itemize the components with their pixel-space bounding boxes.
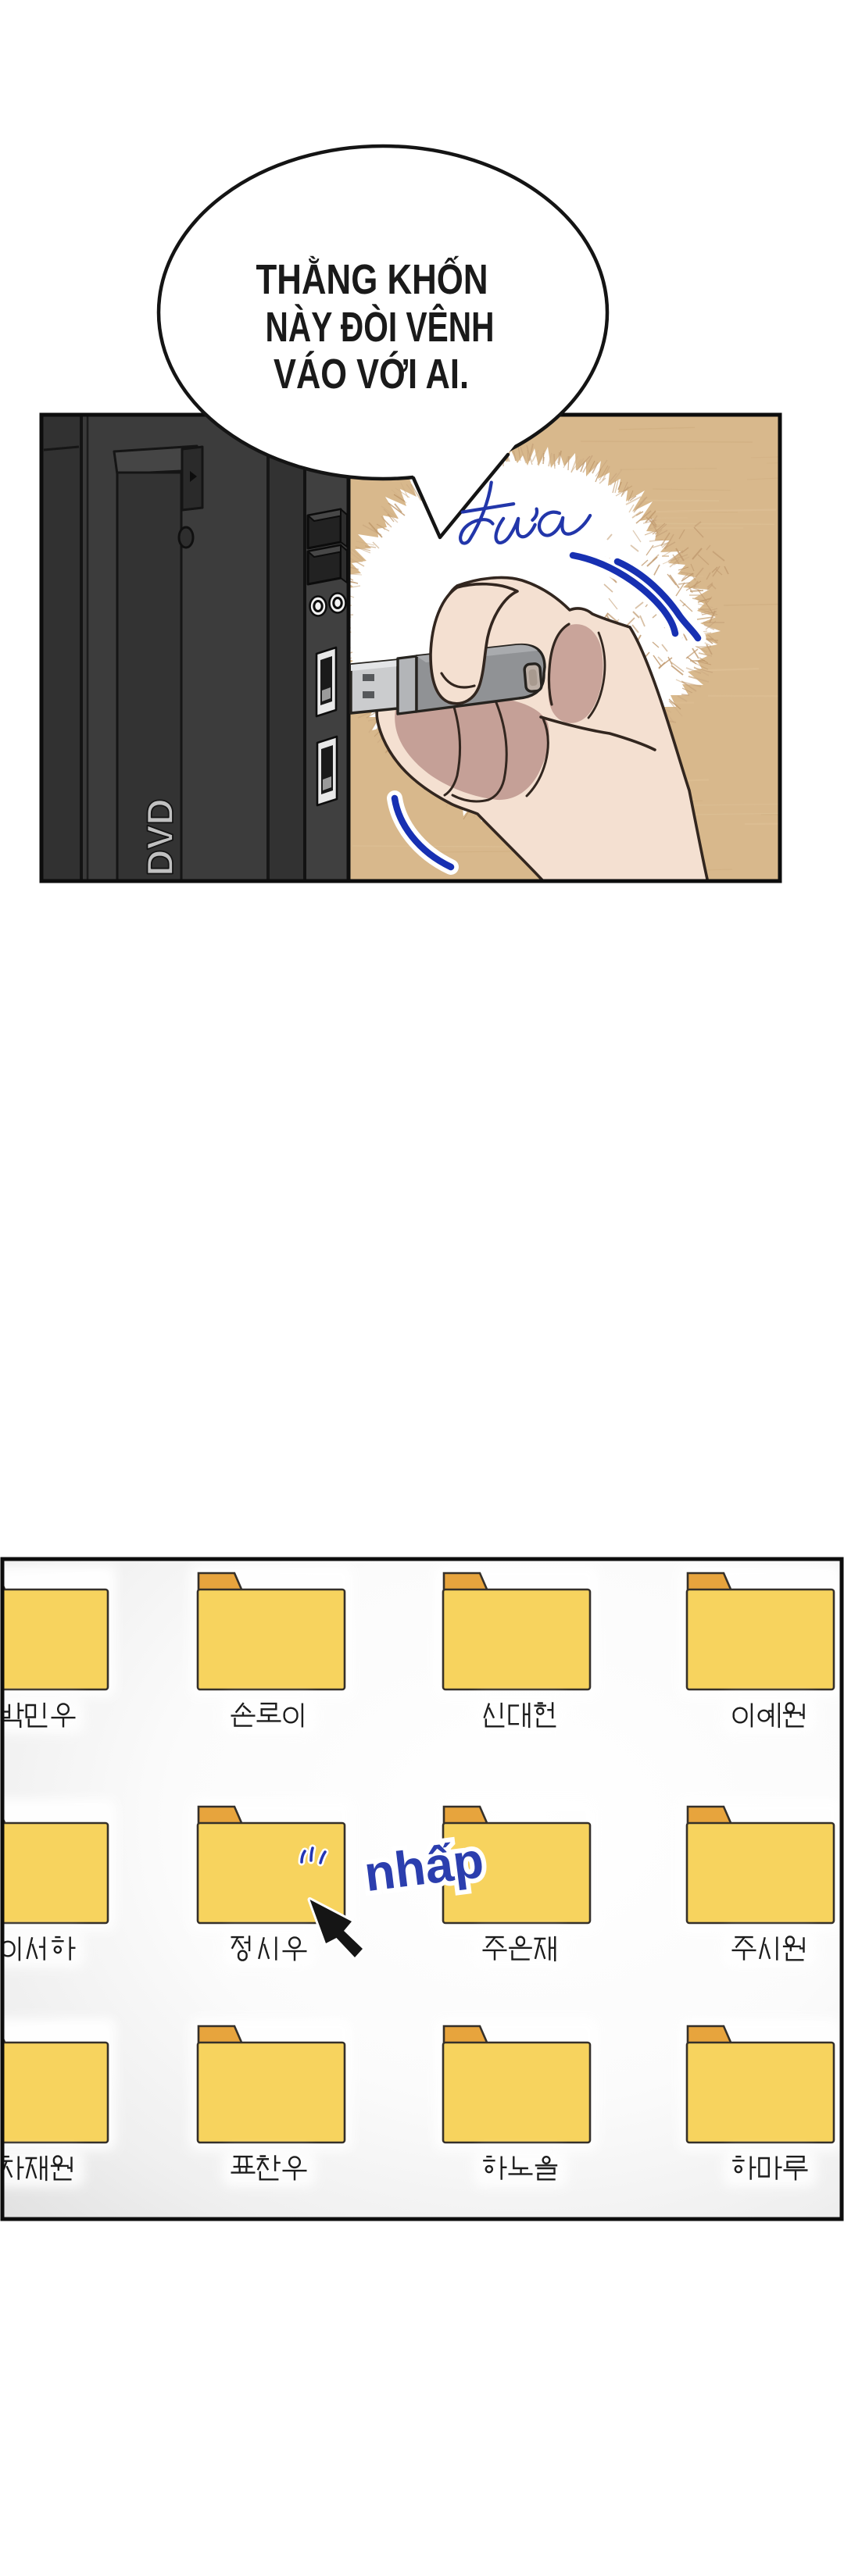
svg-text:THẰNG KHỐN: THẰNG KHỐN	[256, 256, 488, 303]
svg-text:DVD: DVD	[139, 798, 181, 876]
svg-text:VÁO VỚI AI.: VÁO VỚI AI.	[274, 351, 469, 398]
svg-text:NÀY ĐÒI VÊNH: NÀY ĐÒI VÊNH	[266, 303, 495, 351]
